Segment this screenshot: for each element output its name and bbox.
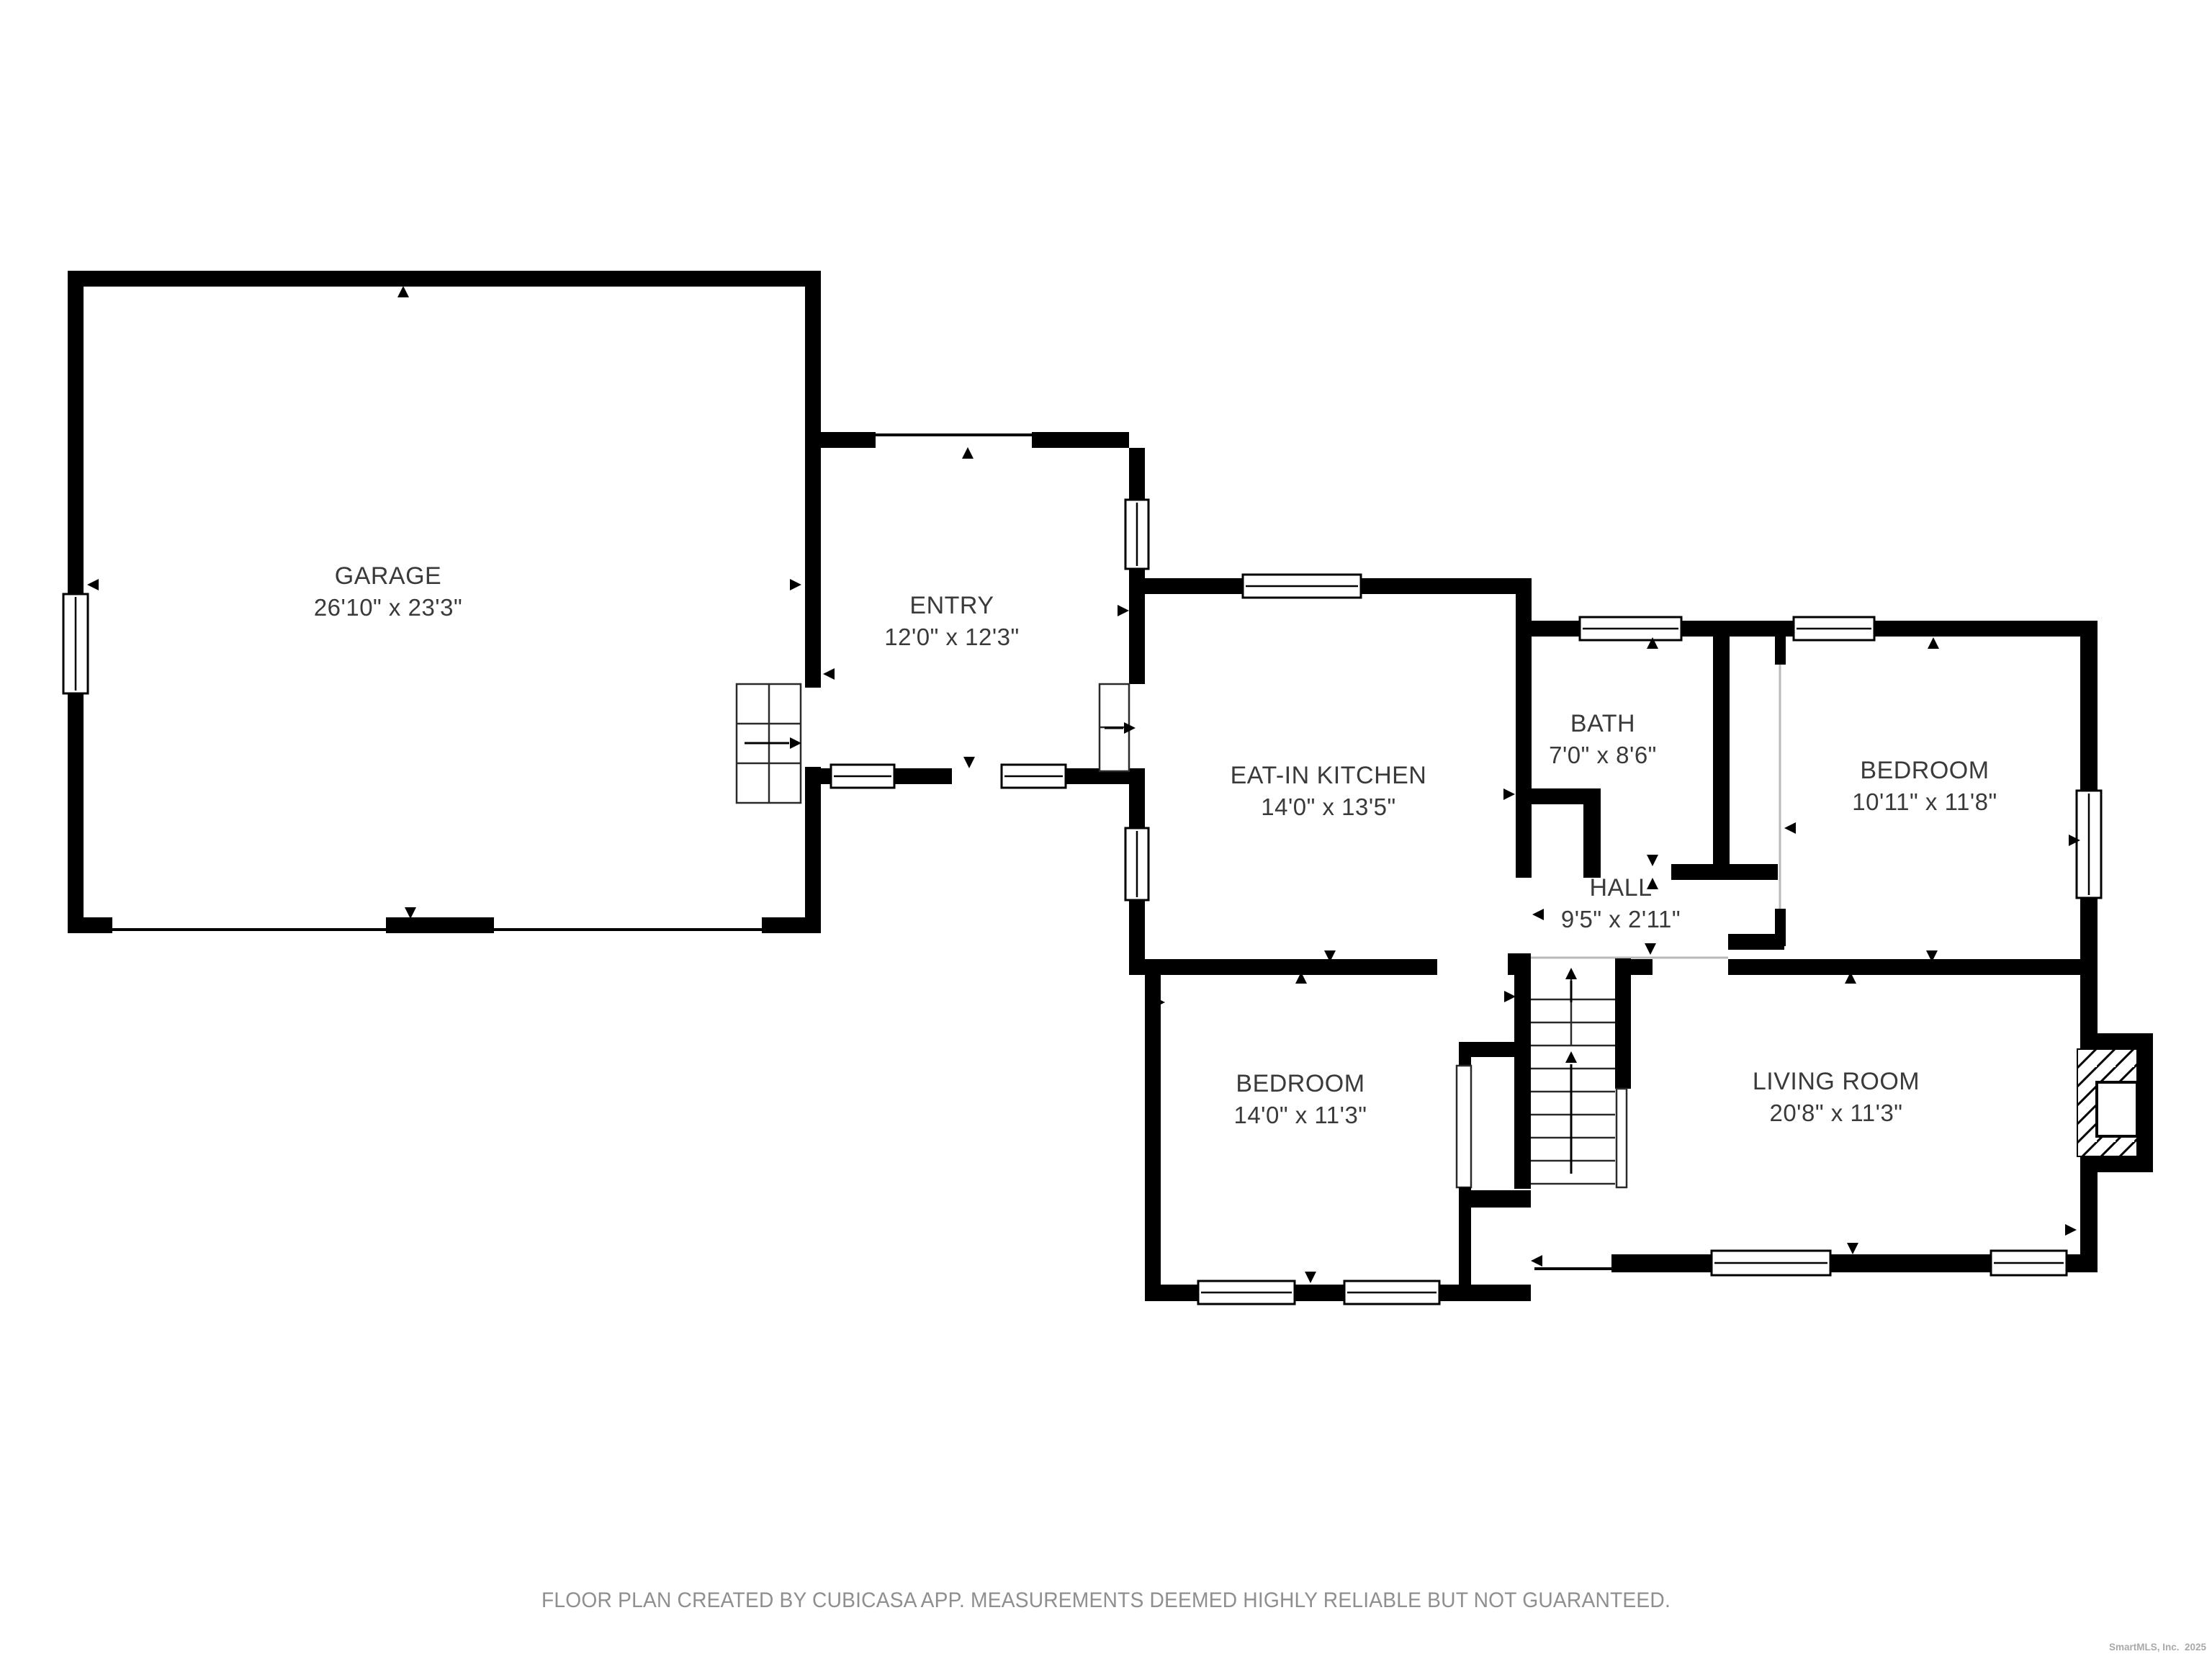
living-room-window-right <box>1991 1251 2067 1275</box>
room-name: BEDROOM <box>1233 1068 1367 1100</box>
room-label-entry: ENTRY 12'0" x 12'3" <box>884 590 1019 653</box>
room-name: BATH <box>1549 708 1657 739</box>
floor-plan: GARAGE 26'10" x 23'3" ENTRY 12'0" x 12'3… <box>0 0 2212 1659</box>
room-dimensions: 14'0" x 13'5" <box>1231 791 1427 823</box>
kitchen-left-window <box>1125 828 1148 900</box>
room-label-bath: BATH 7'0" x 8'6" <box>1549 708 1657 771</box>
bedroom-lower-walls <box>1145 975 1531 1301</box>
kitchen-top-window <box>1243 575 1361 598</box>
room-label-eat-in-kitchen: EAT-IN KITCHEN 14'0" x 13'5" <box>1231 760 1427 823</box>
entry-bottom-window-left <box>831 765 894 788</box>
bedroom-lower-window-left <box>1198 1281 1295 1304</box>
entry-steps <box>1100 684 1136 771</box>
garage-window <box>63 594 88 693</box>
entry-bottom-window-right <box>1002 765 1066 788</box>
room-name: LIVING ROOM <box>1753 1066 1920 1097</box>
room-name: BEDROOM <box>1852 755 1997 786</box>
room-dimensions: 7'0" x 8'6" <box>1549 739 1657 771</box>
room-dimensions: 12'0" x 12'3" <box>884 621 1019 653</box>
fireplace <box>2077 1033 2153 1172</box>
room-label-garage: GARAGE 26'10" x 23'3" <box>314 560 462 624</box>
room-dimensions: 9'5" x 2'11" <box>1561 904 1681 935</box>
room-dimensions: 14'0" x 11'3" <box>1233 1100 1367 1131</box>
room-name: EAT-IN KITCHEN <box>1231 760 1427 791</box>
room-label-living-room: LIVING ROOM 20'8" x 11'3" <box>1753 1066 1920 1129</box>
room-name: ENTRY <box>884 590 1019 621</box>
bedroom-upper-right-window <box>2077 791 2101 898</box>
room-dimensions: 26'10" x 23'3" <box>314 592 462 624</box>
entry-right-window <box>1125 500 1148 569</box>
living-room-window-left <box>1712 1251 1830 1275</box>
bedroom-lower-window-right <box>1344 1281 1439 1304</box>
room-label-hall: HALL 9'5" x 2'11" <box>1561 872 1681 935</box>
room-dimensions: 10'11" x 11'8" <box>1852 786 1997 818</box>
staircase <box>1514 958 1631 1189</box>
footer-disclaimer: FLOOR PLAN CREATED BY CUBICASA APP. MEAS… <box>66 1588 2146 1613</box>
entry-walls <box>821 432 1145 975</box>
hall-walls <box>1615 959 2098 975</box>
garage-steps <box>737 684 801 803</box>
watermark: SmartMLS, Inc. 2025 <box>2109 1642 2206 1653</box>
floor-plan-drawing <box>0 0 2212 1659</box>
room-label-bedroom-upper: BEDROOM 10'11" x 11'8" <box>1852 755 1997 818</box>
bedroom-upper-top-window <box>1794 617 1874 640</box>
room-name: HALL <box>1561 872 1681 904</box>
bath-window <box>1580 617 1681 640</box>
room-label-bedroom-lower: BEDROOM 14'0" x 11'3" <box>1233 1068 1367 1131</box>
room-name: GARAGE <box>314 560 462 592</box>
room-dimensions: 20'8" x 11'3" <box>1753 1097 1920 1129</box>
